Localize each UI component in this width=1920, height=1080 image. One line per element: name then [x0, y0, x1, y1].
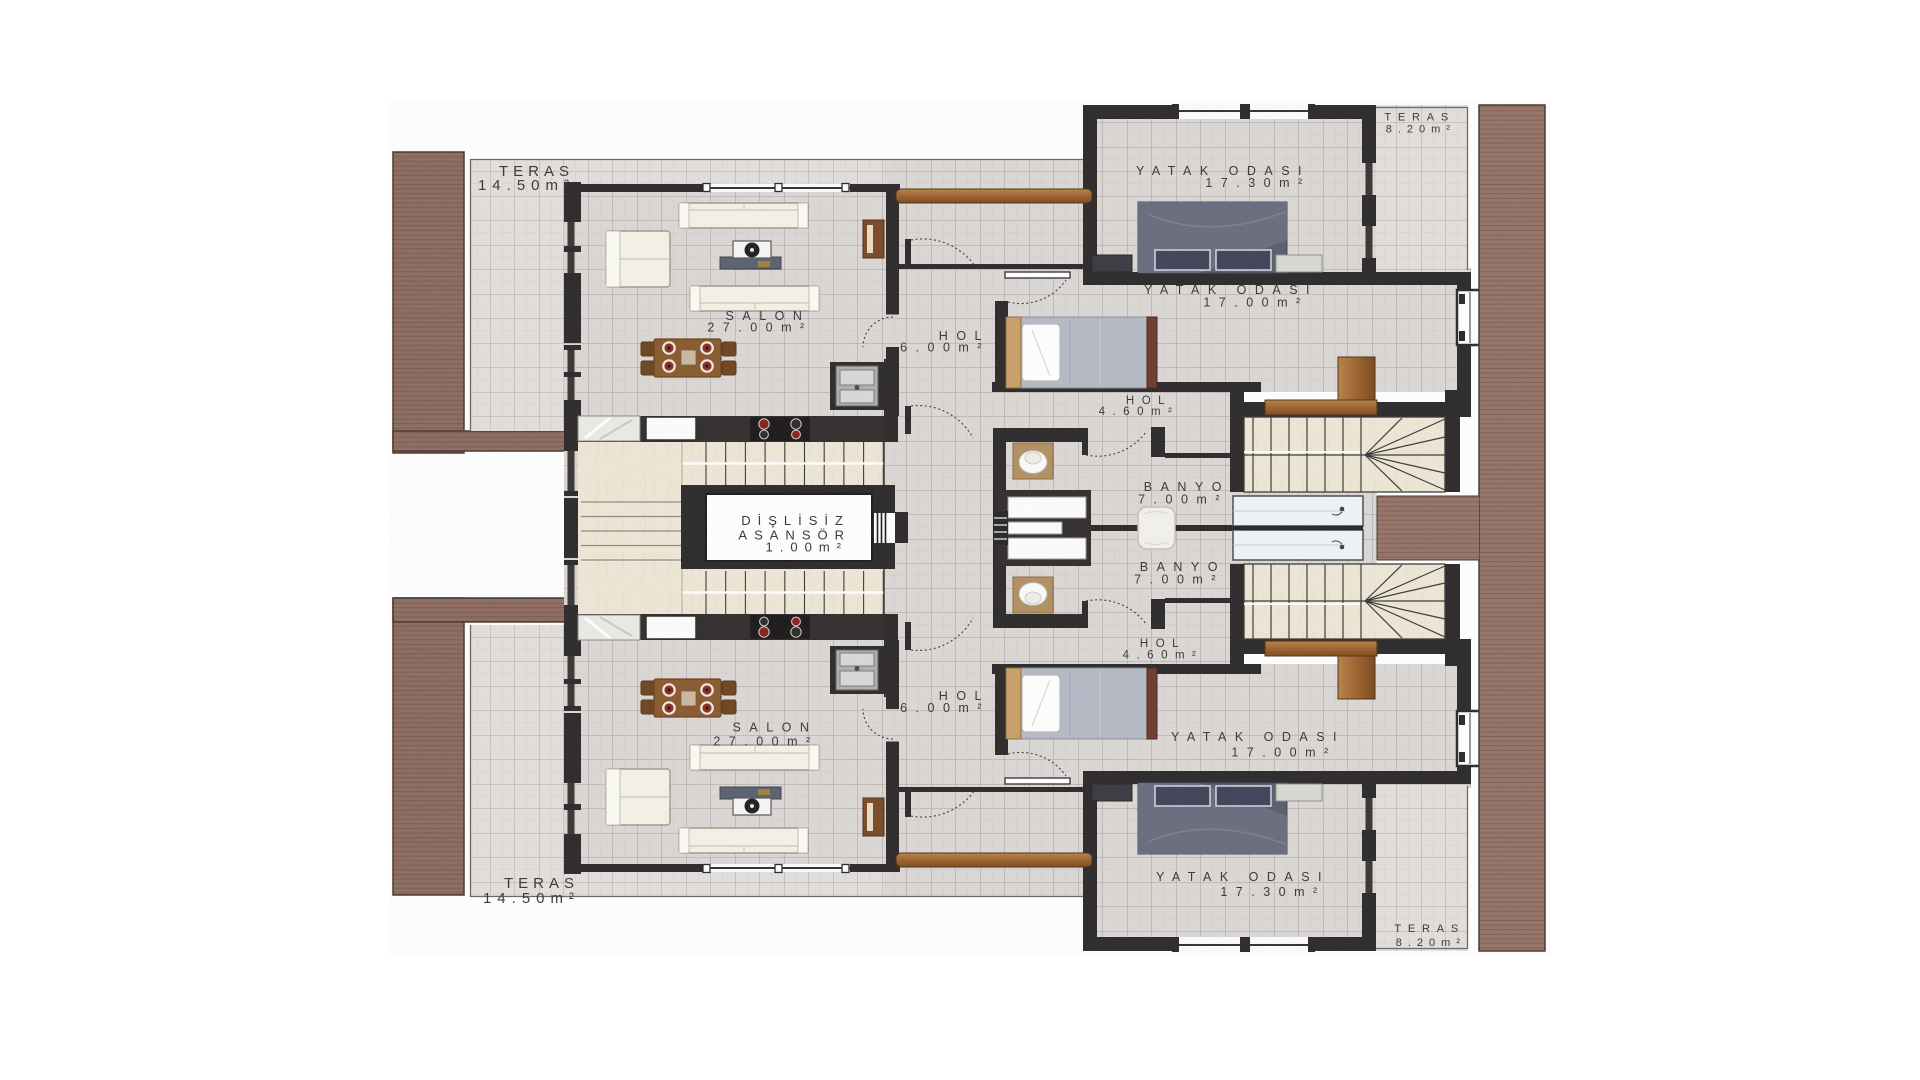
svg-text:17.00m²: 17.00m² — [1203, 296, 1308, 310]
svg-text:7.00m²: 7.00m² — [1138, 493, 1228, 507]
svg-text:YATAK ODASI: YATAK ODASI — [1156, 870, 1330, 884]
svg-text:4.60m²: 4.60m² — [1099, 406, 1180, 418]
svg-text:17.00m²: 17.00m² — [1231, 746, 1336, 760]
svg-text:6.00m²: 6.00m² — [900, 701, 990, 715]
svg-text:HOL: HOL — [1140, 638, 1186, 650]
svg-text:8.20m²: 8.20m² — [1396, 937, 1466, 949]
svg-text:SALON: SALON — [733, 721, 818, 735]
svg-text:YATAK ODASI: YATAK ODASI — [1171, 730, 1345, 744]
svg-text:DİŞLİSİZ: DİŞLİSİZ — [741, 513, 850, 528]
svg-text:27.00m²: 27.00m² — [713, 735, 818, 749]
svg-text:17.30m²: 17.30m² — [1205, 176, 1310, 190]
svg-text:TERAS: TERAS — [1394, 923, 1465, 935]
svg-text:8.20m²: 8.20m² — [1386, 124, 1456, 136]
svg-text:6.00m²: 6.00m² — [900, 341, 990, 355]
svg-text:17.30m²: 17.30m² — [1220, 885, 1325, 899]
svg-text:14.50m²: 14.50m² — [478, 177, 575, 194]
svg-text:TERAS: TERAS — [1384, 112, 1455, 124]
svg-text:14.50m²: 14.50m² — [483, 890, 580, 907]
svg-text:27.00m²: 27.00m² — [707, 321, 812, 335]
svg-text:7.00m²: 7.00m² — [1134, 573, 1224, 587]
svg-text:1.00m²: 1.00m² — [766, 540, 848, 555]
svg-text:4.60m²: 4.60m² — [1123, 650, 1204, 662]
